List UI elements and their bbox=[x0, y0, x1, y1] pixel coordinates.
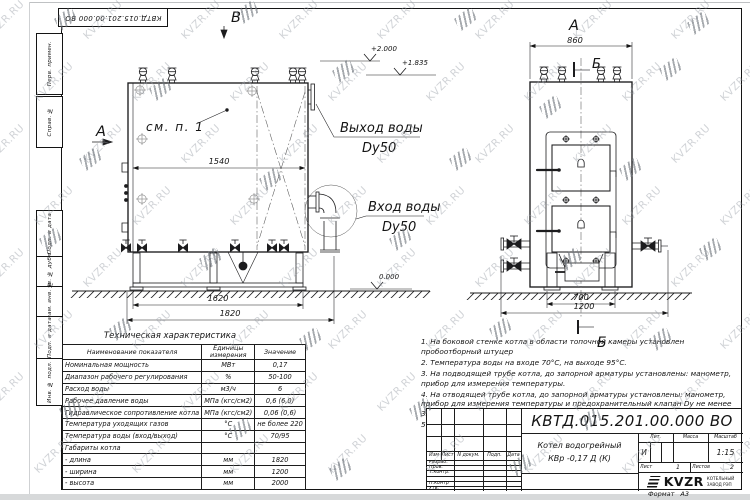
elevation-top-2: +1.835 bbox=[402, 59, 428, 67]
tb-row-utv: Утв. bbox=[427, 486, 456, 491]
dim-860-label: 860 bbox=[567, 35, 583, 45]
tb-header-list: Лист bbox=[441, 451, 454, 460]
outlet-water-label: Выход воды bbox=[340, 121, 423, 136]
spec-table-body: Номинальная мощностьМВт0,17Диапазон рабо… bbox=[63, 360, 306, 490]
spec-table: Наименование показателя Единицы измерени… bbox=[62, 344, 306, 490]
tb-scale-header: Масштаб bbox=[708, 433, 743, 442]
spec-row: Габариты котла bbox=[63, 442, 306, 454]
format-value: А3 bbox=[680, 490, 689, 498]
spec-col-value: Значение bbox=[255, 345, 306, 360]
spec-row: Температура воды (вход/выход)°С70/95 bbox=[63, 430, 306, 442]
dim-1820-label: 1820 bbox=[220, 308, 241, 318]
side-view-label-a: А bbox=[568, 18, 579, 34]
spec-col-units: Единицы измерения bbox=[202, 345, 255, 360]
tb-lit-value: И bbox=[638, 442, 650, 462]
tb-sheets-value: 2 bbox=[722, 462, 742, 472]
spec-col-name: Наименование показателя bbox=[63, 345, 202, 360]
front-view-label-a: А bbox=[95, 124, 106, 140]
drawing-sheet: КВТД.015.201.00.000 ВО Перв. примен. Спр… bbox=[0, 0, 750, 500]
tb-sheet-value: 1 bbox=[668, 462, 688, 472]
see-note-label: см. п. 1 bbox=[146, 120, 204, 134]
spec-row: Расход водым3/ч6 bbox=[63, 383, 306, 395]
spec-row: - ширинамм1200 bbox=[63, 466, 306, 478]
spec-row: - длинамм1820 bbox=[63, 454, 306, 466]
tb-sheet-label: Лист bbox=[640, 462, 668, 472]
tb-header-izm: Изм bbox=[427, 451, 441, 460]
spec-row: Диапазон рабочего регулирования%50-100 bbox=[63, 371, 306, 383]
spec-row: Рабочее давление водыМПа (кгс/см2)0,6 (6… bbox=[63, 395, 306, 407]
note-item: 3. На подводящей трубе котла, до запорно… bbox=[421, 369, 741, 388]
tb-scale-value: 1:15 bbox=[708, 442, 743, 462]
spec-table-title: Техническая характеристика bbox=[62, 331, 278, 341]
tb-mass-header: Масса bbox=[673, 433, 708, 442]
product-name: Котел водогрейный КВр -0,17 Д (К) bbox=[521, 433, 638, 473]
note-item: 1. На боковой стенке котла в области топ… bbox=[421, 337, 741, 356]
front-view-label-b: В bbox=[231, 10, 241, 26]
dim-1620-label: 1620 bbox=[208, 293, 229, 303]
tb-sheets-label: Листов bbox=[692, 462, 722, 472]
dim-1540-label: 1540 bbox=[209, 156, 230, 166]
company-name: КОТЕЛЬНЫЙ ЗАВОД РЭП bbox=[707, 476, 734, 487]
dim-1200-label: 1200 bbox=[574, 301, 595, 311]
spec-header-row: Наименование показателя Единицы измерени… bbox=[63, 345, 306, 360]
tb-lit-header: Лит. bbox=[638, 433, 673, 442]
front-view: А В см. п. 1 +2.000 +1.835 0.000 1540 16… bbox=[72, 10, 441, 324]
product-name-line2: КВр -0,17 Д (К) bbox=[548, 453, 611, 466]
inlet-water-label: Вход воды bbox=[368, 200, 441, 215]
spec-row: Номинальная мощностьМВт0,17 bbox=[63, 360, 306, 372]
company-logo-text: KVZR bbox=[664, 474, 704, 489]
outlet-water-dn: Dy50 bbox=[362, 141, 396, 156]
side-view: А 860 Б Б 700 1200 bbox=[470, 18, 692, 351]
tb-header-ndocum: N докум. bbox=[454, 451, 483, 460]
elevation-zero: 0.000 bbox=[379, 273, 400, 281]
inlet-water-dn: Dy50 bbox=[382, 220, 416, 235]
product-name-line1: Котел водогрейный bbox=[538, 440, 622, 453]
company-cell: KVZR КОТЕЛЬНЫЙ ЗАВОД РЭП bbox=[638, 472, 743, 491]
company-name-line2: ЗАВОД РЭП bbox=[707, 482, 734, 487]
spec-row: Температура уходящих газов°Сне более 220 bbox=[63, 418, 306, 430]
doc-number: КВТД.015.201.00.000 ВО bbox=[521, 409, 743, 433]
format-note: ФорматА3 bbox=[648, 490, 695, 498]
section-b-top-label: Б bbox=[592, 57, 601, 72]
format-label: Формат bbox=[648, 490, 674, 498]
spec-row: - высотамм2000 bbox=[63, 477, 306, 489]
note-item: 2. Температура воды на входе 70°С, на вы… bbox=[421, 358, 741, 368]
tb-header-data: Дата bbox=[506, 451, 521, 460]
tb-header-podp: Подп. bbox=[483, 451, 506, 460]
spec-row: Гидравлическое сопротивление котлаМПа (к… bbox=[63, 407, 306, 419]
kvzr-logo-icon bbox=[647, 476, 661, 488]
elevation-top-1: +2.000 bbox=[371, 45, 397, 53]
title-block: Изм Лист N докум. Подп. Дата Разраб. Про… bbox=[426, 408, 742, 490]
